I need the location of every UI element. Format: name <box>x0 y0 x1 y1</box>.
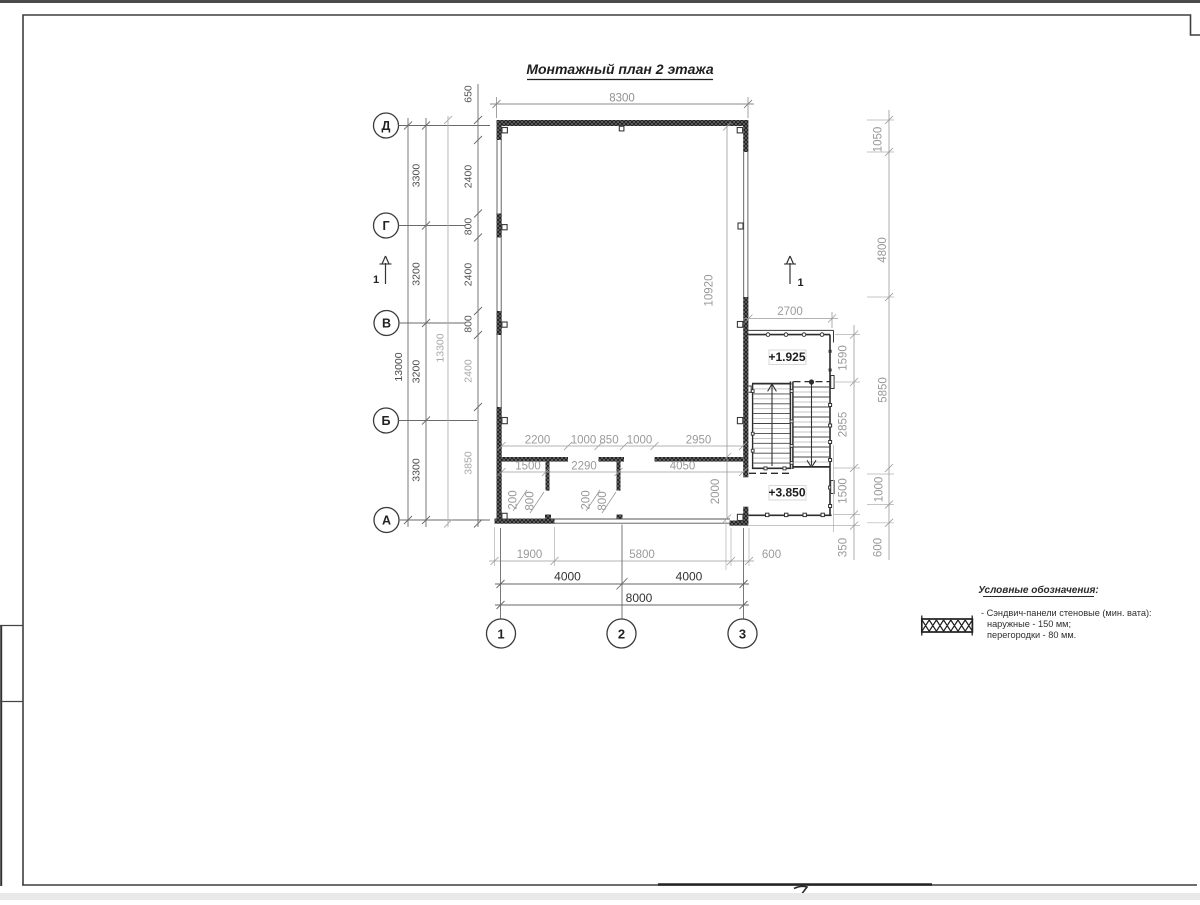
svg-text:1000: 1000 <box>571 435 597 447</box>
svg-text:Г: Г <box>382 219 389 233</box>
svg-text:+3.850: +3.850 <box>768 486 805 500</box>
svg-text:13300: 13300 <box>435 333 447 362</box>
svg-text:3200: 3200 <box>411 262 423 286</box>
svg-text:2200: 2200 <box>525 435 551 447</box>
svg-text:1900: 1900 <box>517 549 543 561</box>
svg-text:2400: 2400 <box>463 359 475 383</box>
svg-text:Монтажный план 2 этажа: Монтажный план 2 этажа <box>526 61 714 77</box>
svg-text:1500: 1500 <box>838 478 850 504</box>
svg-text:2: 2 <box>618 627 625 642</box>
svg-text:4800: 4800 <box>877 237 889 263</box>
svg-text:2400: 2400 <box>463 165 475 189</box>
svg-text:600: 600 <box>873 538 885 557</box>
svg-text:В: В <box>382 317 391 331</box>
svg-text:200: 200 <box>508 490 520 509</box>
svg-text:- Сэндвич-панели стеновые (мин: - Сэндвич-панели стеновые (мин. вата): <box>981 608 1152 618</box>
svg-text:4000: 4000 <box>676 570 703 584</box>
svg-text:10920: 10920 <box>704 275 716 307</box>
svg-text:перегородки - 80 мм.: перегородки - 80 мм. <box>987 630 1076 640</box>
svg-text:2000: 2000 <box>710 479 722 505</box>
svg-text:1050: 1050 <box>873 127 885 153</box>
svg-text:4000: 4000 <box>554 570 581 584</box>
svg-text:600: 600 <box>762 549 781 561</box>
svg-text:1000: 1000 <box>874 477 886 503</box>
svg-text:800: 800 <box>597 491 609 510</box>
svg-text:1500: 1500 <box>515 461 541 473</box>
svg-text:8000: 8000 <box>626 591 653 605</box>
svg-text:650: 650 <box>463 85 475 103</box>
svg-text:2290: 2290 <box>571 461 597 473</box>
svg-text:3300: 3300 <box>411 164 423 188</box>
svg-text:4050: 4050 <box>670 461 696 473</box>
svg-text:2950: 2950 <box>686 435 712 447</box>
svg-text:200: 200 <box>581 490 593 509</box>
svg-text:Д: Д <box>382 119 391 133</box>
svg-text:+1.925: +1.925 <box>768 350 805 364</box>
svg-text:3850: 3850 <box>463 451 475 475</box>
svg-text:13000: 13000 <box>393 352 405 381</box>
svg-text:5850: 5850 <box>878 377 890 403</box>
svg-text:наружные - 150 мм;: наружные - 150 мм; <box>987 619 1071 629</box>
svg-text:2855: 2855 <box>838 412 850 438</box>
svg-text:3: 3 <box>739 627 746 642</box>
svg-text:800: 800 <box>525 491 537 510</box>
svg-text:800: 800 <box>463 315 475 333</box>
svg-text:1: 1 <box>497 627 504 642</box>
svg-text:А: А <box>382 514 391 528</box>
svg-text:Б: Б <box>382 414 391 428</box>
svg-text:2400: 2400 <box>463 263 475 287</box>
svg-text:5800: 5800 <box>629 549 655 561</box>
svg-text:1: 1 <box>797 277 803 289</box>
svg-text:800: 800 <box>463 218 475 236</box>
svg-text:3300: 3300 <box>411 458 423 482</box>
svg-text:850: 850 <box>599 435 618 447</box>
svg-text:2700: 2700 <box>777 306 803 318</box>
svg-text:1: 1 <box>373 274 379 286</box>
svg-text:350: 350 <box>838 538 850 557</box>
svg-text:Условные обозначения:: Условные обозначения: <box>978 584 1098 596</box>
svg-text:1000: 1000 <box>627 435 653 447</box>
svg-text:3200: 3200 <box>411 360 423 384</box>
svg-text:1590: 1590 <box>838 345 850 371</box>
svg-text:8300: 8300 <box>609 93 635 105</box>
